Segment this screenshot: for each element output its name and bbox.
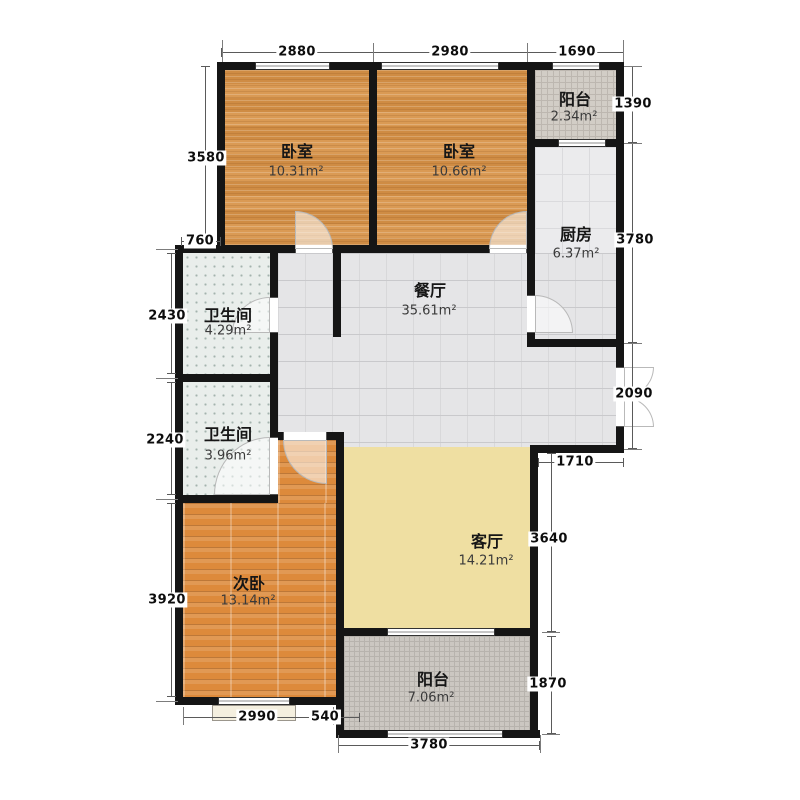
dim-ext <box>156 701 178 702</box>
dim-right-1: 1390 <box>612 97 653 112</box>
window-bedroom-mid-north <box>381 62 499 70</box>
dim-top-1: 2880 <box>276 45 317 60</box>
door-kitchen <box>527 295 535 333</box>
door-arc-entry-lower <box>624 397 654 427</box>
room-label-bath-lower: 卫生间 <box>204 421 252 445</box>
room-area-bath-lower: 3.96m² <box>205 449 252 464</box>
dim-left-3: 2430 <box>146 309 187 324</box>
dim-bottom-3: 3780 <box>408 738 449 753</box>
dim-right-6: 1870 <box>527 677 568 692</box>
dim-ext <box>183 707 184 725</box>
dim-ext <box>156 499 178 500</box>
dim-left-1: 3580 <box>185 151 226 166</box>
dim-ext <box>624 449 642 450</box>
dim-ext <box>373 43 374 62</box>
dim-ext <box>624 143 642 144</box>
dim-right-3: 2090 <box>613 387 654 402</box>
window-living-balcony <box>387 628 495 636</box>
dim-bottom-2: 540 <box>309 710 341 725</box>
dim-right-5: 3640 <box>528 532 569 547</box>
dim-ext <box>623 40 624 62</box>
room-label-second-bedroom: 次卧 <box>233 570 265 594</box>
dim-left-2: 760 <box>184 234 216 249</box>
dim-top-2: 2980 <box>429 45 470 60</box>
room-area-balcony-top: 2.34m² <box>551 110 598 125</box>
wall-corridor-stub <box>333 245 341 337</box>
door-second-bedroom <box>283 432 327 440</box>
room-label-balcony-top: 阳台 <box>559 86 591 110</box>
window-second-bedroom-south <box>218 697 290 705</box>
room-area-dining: 35.61m² <box>401 304 456 319</box>
room-label-bath-upper: 卫生间 <box>204 302 252 326</box>
room-label-bedroom-left: 卧室 <box>281 138 313 162</box>
window-balcony-kitchen <box>558 139 606 147</box>
room-label-kitchen: 厨房 <box>560 221 592 245</box>
dim-left-5: 3920 <box>146 593 187 608</box>
room-area-balcony-bottom: 7.06m² <box>408 691 455 706</box>
dim-ext <box>222 40 223 62</box>
wall-kitchen-south <box>527 339 624 347</box>
room-area-bath-upper: 4.29m² <box>205 324 252 339</box>
dim-ext <box>156 378 178 379</box>
room-area-second-bedroom: 13.14m² <box>220 594 275 609</box>
room-area-bedroom-mid: 10.66m² <box>431 165 486 180</box>
window-balcony-top-north <box>552 62 600 70</box>
wall-bath-divider <box>175 374 278 382</box>
door-bath-upper <box>270 297 278 333</box>
room-label-bedroom-mid: 卧室 <box>443 138 475 162</box>
dim-right-2: 3780 <box>614 233 655 248</box>
dim-bottom-1: 2990 <box>236 710 277 725</box>
dim-ext <box>542 632 560 633</box>
room-label-dining: 餐厅 <box>414 277 446 301</box>
dim-ext <box>156 249 178 250</box>
room-area-kitchen: 6.37m² <box>553 247 600 262</box>
wall-bed-divider <box>369 70 377 245</box>
dim-left-4: 2240 <box>144 433 185 448</box>
room-dining-floor <box>278 253 616 449</box>
dim-ext <box>624 343 642 344</box>
room-label-balcony-bottom: 阳台 <box>417 666 449 690</box>
wall-entry-south <box>530 445 624 453</box>
dim-ext <box>624 66 642 67</box>
wall-bath-lower-south <box>175 495 278 503</box>
room-area-bedroom-left: 10.31m² <box>268 165 323 180</box>
door-bath-lower <box>270 437 278 495</box>
dim-ext <box>542 734 560 735</box>
dim-right-4: 1710 <box>554 455 595 470</box>
floor-plan: 2880 2980 1690 3580 760 2430 2240 3920 1… <box>0 0 800 800</box>
wall-bedrooms-south <box>175 245 535 253</box>
wall-mid-vertical <box>336 432 344 738</box>
dim-ext <box>540 735 541 753</box>
dim-ext <box>527 43 528 62</box>
window-bedroom-left-north <box>255 62 330 70</box>
room-area-living: 14.21m² <box>458 554 513 569</box>
dim-ext <box>338 735 339 753</box>
room-label-living: 客厅 <box>471 528 503 552</box>
dim-top-3: 1690 <box>556 45 597 60</box>
